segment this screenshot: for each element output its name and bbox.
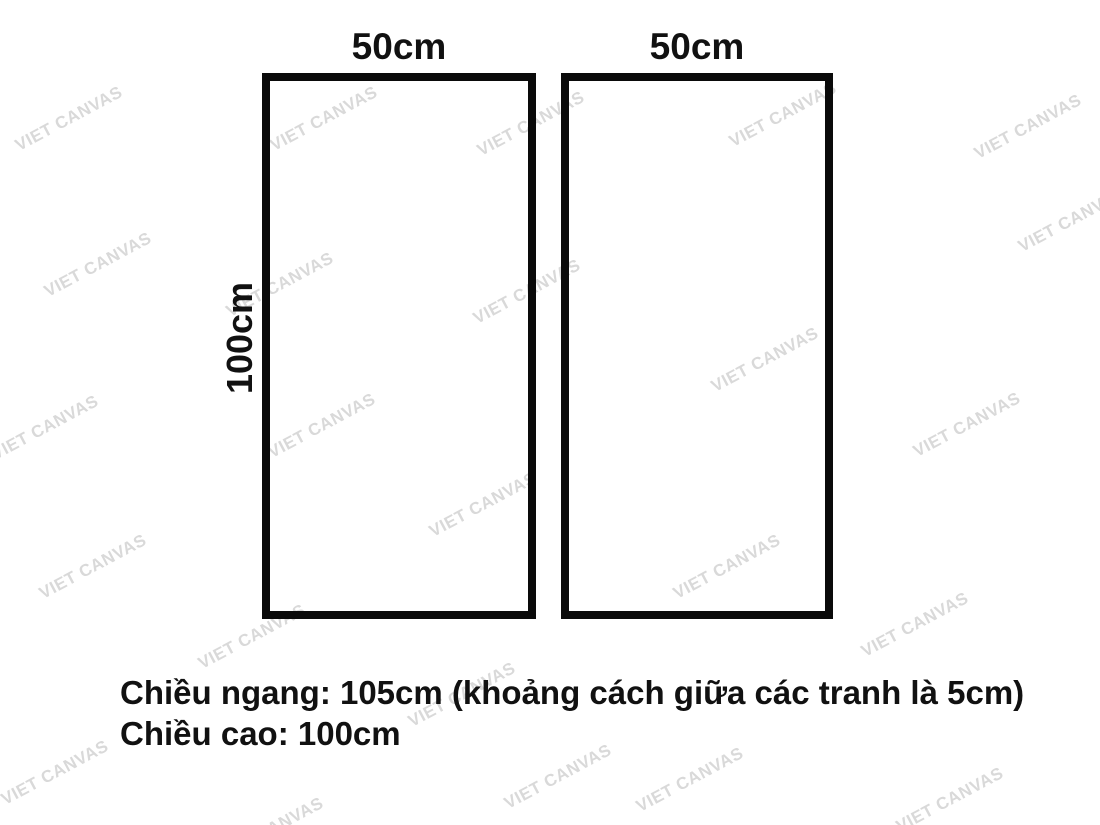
frame-2-width-label: 50cm — [650, 26, 745, 68]
diagram-layer: 50cm 50cm 100cm Chiều ngang: 105cm (khoả… — [0, 0, 1100, 825]
canvas-size-diagram: VIET CANVASVIET CANVASVIET CANVASVIET CA… — [0, 0, 1100, 825]
caption: Chiều ngang: 105cm (khoảng cách giữa các… — [120, 672, 1024, 754]
caption-horizontal-dimension: Chiều ngang: 105cm (khoảng cách giữa các… — [120, 672, 1024, 713]
frame-1-outline — [262, 73, 536, 619]
frame-2-outline — [561, 73, 833, 619]
caption-vertical-dimension: Chiều cao: 100cm — [120, 713, 1024, 754]
frame-height-label: 100cm — [219, 282, 261, 394]
frame-1-width-label: 50cm — [352, 26, 447, 68]
